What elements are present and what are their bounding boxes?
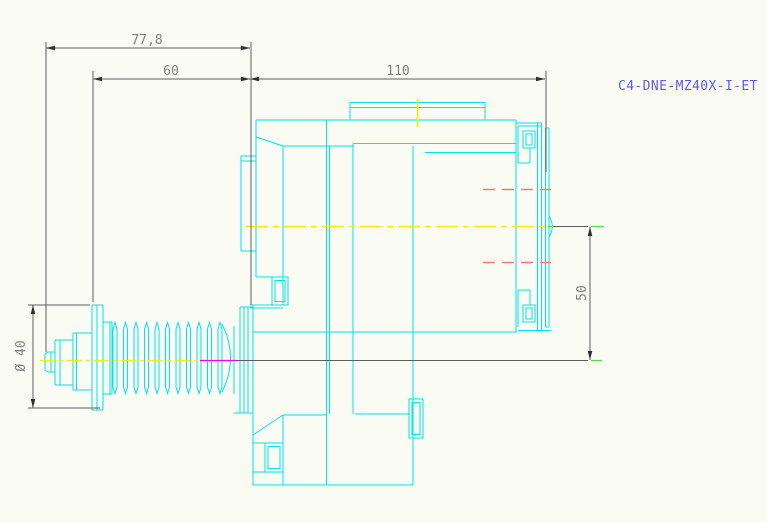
- dim-text-50: 50: [575, 285, 590, 301]
- part-number-label: C4-DNE-MZ40X-I-ET: [618, 79, 758, 94]
- dim-text-77-8: 77,8: [131, 33, 162, 48]
- dim-text-60: 60: [163, 64, 179, 79]
- dim-text-110: 110: [386, 64, 409, 79]
- cad-drawing-viewport[interactable]: 77,8 60 110 50 Ø 40 C4-DNE-MZ40X-I-ET: [0, 0, 767, 523]
- dim-text-dia40: Ø 40: [14, 340, 29, 371]
